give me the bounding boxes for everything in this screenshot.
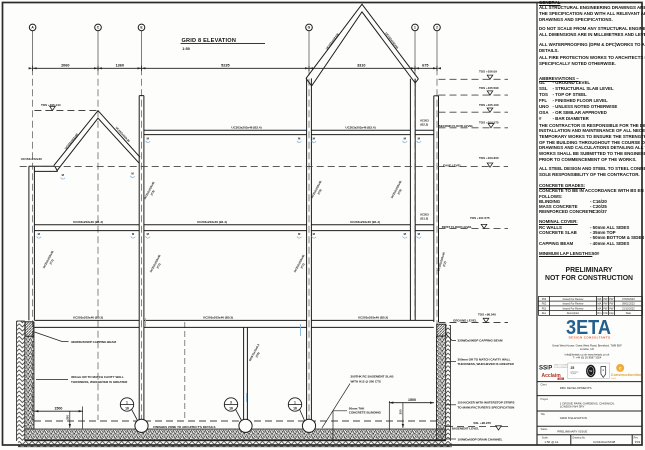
svg-text:P03: P03 <box>635 440 641 444</box>
svg-text:3: 3 <box>230 400 232 404</box>
svg-text:UC203x203x46 (B0.3): UC203x203x46 (B0.3) <box>358 315 388 319</box>
svg-text:TOS +105.100: TOS +105.100 <box>479 103 499 107</box>
svg-text:SECOND FLOOR LEVEL: SECOND FLOOR LEVEL <box>439 124 474 128</box>
svg-text:WITH H12 @ 200 CTS: WITH H12 @ 200 CTS <box>351 380 381 384</box>
svg-text:PW: PW <box>603 298 608 301</box>
svg-text:Client: Client <box>541 384 547 387</box>
svg-text:SSL +96.970: SSL +96.970 <box>473 421 491 425</box>
svg-text:09/01/2023: 09/01/2023 <box>622 303 635 306</box>
svg-text:UC203x203x46 (B1.4): UC203x203x46 (B1.4) <box>350 220 380 224</box>
svg-text:NOT FOR CONSTRUCTION: NOT FOR CONSTRUCTION <box>545 273 633 282</box>
svg-text:330WDx500DP CAPPING BEAM: 330WDx500DP CAPPING BEAM <box>458 338 503 342</box>
svg-text:1500: 1500 <box>54 407 62 411</box>
svg-text:Issued For Review: Issued For Review <box>563 303 584 306</box>
svg-text:Title: Title <box>541 413 546 416</box>
svg-text:TOS +105.590: TOS +105.590 <box>479 86 499 90</box>
svg-text:Great West House, Great West R: Great West House, Great West Road, Brent… <box>552 343 622 347</box>
svg-text:300THK RC BASEMENT SLAB: 300THK RC BASEMENT SLAB <box>351 375 395 379</box>
svg-text:EAVE LEVEL: EAVE LEVEL <box>443 163 462 167</box>
svg-text:UC203x203x46 (B2.4): UC203x203x46 (B2.4) <box>345 125 375 129</box>
svg-text:LONDON W4 3RY: LONDON W4 3RY <box>560 405 585 409</box>
svg-text:UC203x203x46 (B1.4): UC203x203x46 (B1.4) <box>73 220 103 224</box>
svg-text:UC152x152x30: UC152x152x30 <box>63 132 79 150</box>
svg-text:DBC DEVELOPMENTS: DBC DEVELOPMENTS <box>560 386 592 390</box>
svg-text:A: A <box>602 368 604 372</box>
svg-text:TOS +103.300: TOS +103.300 <box>479 156 499 160</box>
svg-text:Issued For Review: Issued For Review <box>563 308 584 311</box>
svg-text:Rev: Rev <box>542 312 547 315</box>
svg-text:3310: 3310 <box>357 63 365 67</box>
svg-text:1: 1 <box>294 400 296 404</box>
svg-text:UC152x152x30: UC152x152x30 <box>21 157 42 161</box>
svg-text:16: 16 <box>293 406 297 410</box>
svg-text:P03: P03 <box>542 298 547 301</box>
svg-text:16: 16 <box>125 406 129 410</box>
svg-text:GROUND LEVEL: GROUND LEVEL <box>453 319 477 323</box>
svg-text:P: P <box>548 365 552 371</box>
svg-text:PW: PW <box>603 303 608 306</box>
svg-text:300mm OR TO MATCH CAVITY WALL: 300mm OR TO MATCH CAVITY WALL <box>458 357 511 361</box>
svg-text:Constructionline: Constructionline <box>611 373 642 377</box>
svg-text:Description: Description <box>567 312 580 315</box>
svg-text:M: M <box>38 232 41 236</box>
svg-text:App: App <box>609 312 614 315</box>
svg-text:(B2.2): (B2.2) <box>420 123 428 127</box>
svg-text:16: 16 <box>229 406 233 410</box>
svg-text:TOS +106.09: TOS +106.09 <box>479 70 497 74</box>
svg-text:M: M <box>418 232 421 236</box>
svg-text:300mm OR TO MATCH CAVITY WALL: 300mm OR TO MATCH CAVITY WALL <box>71 375 124 379</box>
svg-text:(C2): (C2) <box>442 261 447 267</box>
svg-text:Issued For Review: Issued For Review <box>563 298 584 301</box>
svg-text:1500: 1500 <box>408 398 416 402</box>
svg-text:London, UK: London, UK <box>580 347 594 351</box>
svg-text:IN PROCUREMENT: IN PROCUREMENT <box>554 367 569 369</box>
svg-text:Gold: Gold <box>611 378 616 380</box>
svg-text:150 KICKER WITH WATERSTOP STRI: 150 KICKER WITH WATERSTOP STRIPS <box>458 401 515 405</box>
svg-text:P02: P02 <box>542 303 547 306</box>
svg-text:MA: MA <box>598 308 602 311</box>
svg-text:MA: MA <box>598 298 602 301</box>
svg-text:THICKNESS, WHICHEVER IS GREATE: THICKNESS, WHICHEVER IS GREATER <box>458 362 515 366</box>
svg-text:T: +44 (0) 20 8587 3024: T: +44 (0) 20 8587 3024 <box>573 356 602 360</box>
svg-text:M: M <box>147 232 150 236</box>
svg-text:TOS +101.575: TOS +101.575 <box>470 216 490 220</box>
svg-text:PRELIMINARY ISSUE: PRELIMINARY ISSUE <box>557 430 587 434</box>
svg-text:P01: P01 <box>542 308 547 311</box>
svg-text:2060: 2060 <box>61 63 69 67</box>
svg-text:2: 2 <box>436 26 438 30</box>
svg-text:100WDx65DP DRAIN CHANNEL: 100WDx65DP DRAIN CHANNEL <box>458 438 503 442</box>
svg-text:(B1.5): (B1.5) <box>420 217 428 221</box>
svg-text:M: M <box>131 172 134 176</box>
svg-text:TOS +98.540: TOS +98.540 <box>478 312 496 316</box>
svg-text:G: G <box>308 26 311 30</box>
svg-text:21/12/2022: 21/12/2022 <box>622 308 635 311</box>
svg-text:GRID 8 ELEVATION: GRID 8 ELEVATION <box>182 38 237 44</box>
svg-text:UC203x203x46 (B2.4): UC203x203x46 (B2.4) <box>231 125 261 129</box>
svg-text:Date: Date <box>626 312 632 315</box>
svg-text:SAFETY SCHEMES: SAFETY SCHEMES <box>554 364 569 367</box>
svg-text:350: 350 <box>399 409 403 414</box>
svg-text:Drawing No.: Drawing No. <box>573 436 586 439</box>
svg-text:M: M <box>313 137 316 141</box>
svg-text:FINISHES ZONE TO ARCHITECT'S D: FINISHES ZONE TO ARCHITECT'S DETAILS <box>153 425 215 429</box>
svg-text:C2434/GA/SK08: C2434/GA/SK08 <box>593 440 616 444</box>
svg-text:M: M <box>62 173 65 177</box>
svg-text:M: M <box>404 137 407 141</box>
svg-text:M: M <box>418 137 421 141</box>
svg-text:M: M <box>298 137 301 141</box>
svg-text:M: M <box>132 232 135 236</box>
svg-text:PW: PW <box>609 303 614 306</box>
svg-text:BASEMENT LEVEL: BASEMENT LEVEL <box>452 426 480 430</box>
svg-text:1: 1 <box>414 26 416 30</box>
svg-text:1:50: 1:50 <box>182 47 190 51</box>
svg-text:M: M <box>147 137 150 141</box>
svg-text:5235: 5235 <box>221 63 229 67</box>
svg-text:Status: Status <box>541 428 549 431</box>
svg-text:Drn: Drn <box>597 312 602 315</box>
svg-text:330WDx500DP CAPPING BEAM: 330WDx500DP CAPPING BEAM <box>71 340 116 344</box>
svg-text:TO MANUFACTURER'S SPECIFICATIO: TO MANUFACTURER'S SPECIFICATION <box>458 405 515 409</box>
svg-text:PW: PW <box>609 308 614 311</box>
svg-text:UC203x203x46 (B1.4): UC203x203x46 (B1.4) <box>197 220 227 224</box>
svg-text:350: 350 <box>66 415 70 420</box>
svg-text:UC203x203x46 (B0.3): UC203x203x46 (B0.3) <box>73 315 103 319</box>
svg-text:1: 1 <box>126 400 128 404</box>
svg-text:MA: MA <box>598 303 602 306</box>
svg-text:1360: 1360 <box>116 63 124 67</box>
svg-text:UC152x152x30: UC152x152x30 <box>115 126 131 144</box>
svg-text:M: M <box>404 232 407 236</box>
svg-text:UC203x203x46 (B0.3): UC203x203x46 (B0.3) <box>203 315 233 319</box>
svg-text:info@betadc.co.uk www.be: info@betadc.co.uk www.betadc.co.uk <box>565 352 610 356</box>
svg-text:Project: Project <box>541 398 549 401</box>
svg-text:THICKNESS, WHICHEVER IS GREATE: THICKNESS, WHICHEVER IS GREATER <box>71 380 128 384</box>
svg-text:C: C <box>619 366 622 370</box>
svg-text:1:50 @ A1: 1:50 @ A1 <box>544 440 558 444</box>
svg-text:PW: PW <box>603 308 608 311</box>
svg-text:M: M <box>298 232 301 236</box>
svg-text:PW: PW <box>609 298 614 301</box>
svg-text:25: 25 <box>571 366 575 370</box>
svg-text:675: 675 <box>422 63 428 67</box>
svg-text:FIRST FLOOR LEVEL: FIRST FLOOR LEVEL <box>442 225 473 229</box>
svg-text:Chk: Chk <box>603 312 608 315</box>
svg-text:DESIGN CONSULTANTS: DESIGN CONSULTANTS <box>569 335 611 339</box>
svg-text:GRID 8 ELEVATION: GRID 8 ELEVATION <box>560 416 587 420</box>
svg-text:CONCRETE BLINDING: CONCRETE BLINDING <box>349 411 382 415</box>
svg-text:07/03/2023: 07/03/2023 <box>622 298 635 301</box>
svg-text:W: W <box>589 369 592 373</box>
svg-text:M: M <box>313 232 316 236</box>
svg-text:UC152x152x30: UC152x152x30 <box>384 31 399 49</box>
